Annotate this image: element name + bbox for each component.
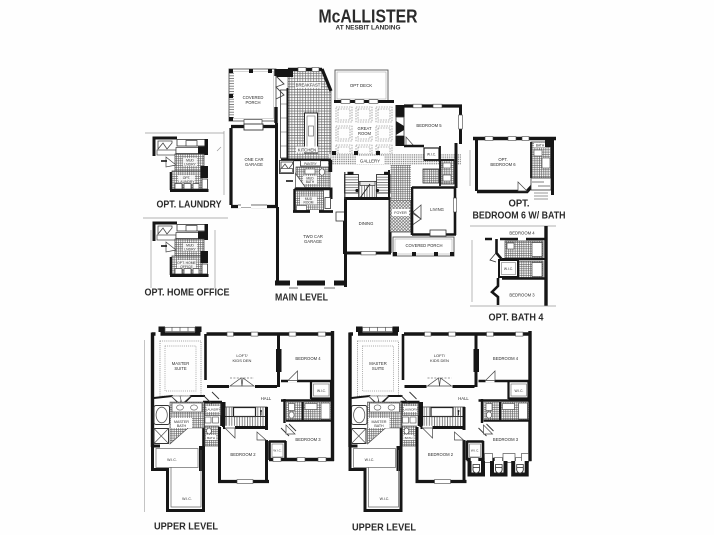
svg-text:LIVING: LIVING (430, 207, 444, 212)
svg-text:OPT. HOME OFFICE: OPT. HOME OFFICE (145, 287, 230, 299)
svg-text:BEDROOM 4: BEDROOM 4 (509, 231, 535, 236)
svg-text:BEDROOM 5: BEDROOM 5 (416, 123, 442, 128)
svg-text:AT NESBIT LANDING: AT NESBIT LANDING (336, 25, 401, 32)
svg-text:BEDROOM 6 W/ BATH: BEDROOM 6 W/ BATH (473, 210, 566, 222)
svg-text:GARAGE: GARAGE (245, 162, 263, 167)
svg-text:W.I.C.: W.I.C. (273, 449, 281, 453)
svg-text:BEDROOM 3: BEDROOM 3 (509, 293, 535, 298)
svg-text:BEDROOM 3: BEDROOM 3 (295, 437, 321, 442)
svg-text:W.I.C.: W.I.C. (182, 497, 192, 501)
svg-text:W.I.C.: W.I.C. (167, 458, 177, 462)
svg-text:LNDRY: LNDRY (184, 163, 196, 167)
svg-text:OPT.: OPT. (509, 198, 530, 210)
svg-text:PORCH: PORCH (245, 100, 260, 105)
svg-text:GARAGE: GARAGE (304, 239, 322, 244)
svg-text:BATH: BATH (306, 180, 315, 184)
svg-text:BATH: BATH (536, 144, 545, 148)
svg-text:MAIN LEVEL: MAIN LEVEL (275, 292, 328, 304)
svg-text:BEDROOM 6: BEDROOM 6 (490, 162, 516, 167)
svg-text:W.I.C.: W.I.C. (427, 153, 436, 157)
svg-text:UPPER LEVEL: UPPER LEVEL (154, 521, 219, 533)
svg-text:UPPER LEVEL: UPPER LEVEL (352, 522, 417, 534)
svg-text:McALLISTER: McALLISTER (319, 6, 418, 27)
svg-text:SUITE: SUITE (174, 366, 187, 371)
svg-text:PANTRY: PANTRY (304, 162, 318, 166)
svg-text:OPT. BATH 4: OPT. BATH 4 (489, 312, 544, 324)
svg-text:W.I.C.: W.I.C. (504, 267, 513, 271)
svg-text:COVERED PORCH: COVERED PORCH (406, 243, 443, 248)
svg-text:LNDRY: LNDRY (184, 248, 196, 252)
svg-text:OPT. LAUNDRY: OPT. LAUNDRY (157, 199, 222, 211)
svg-text:GALLERY: GALLERY (360, 159, 380, 164)
svg-text:LAUNDRY: LAUNDRY (206, 408, 220, 412)
svg-text:DINING: DINING (359, 221, 374, 226)
svg-text:KITCHEN: KITCHEN (298, 148, 316, 153)
svg-text:BEDROOM 4: BEDROOM 4 (295, 356, 321, 361)
svg-text:ROOM: ROOM (358, 131, 372, 136)
svg-text:FOYER: FOYER (394, 211, 407, 215)
svg-text:OPT DECK: OPT DECK (350, 83, 372, 88)
svg-text:W.I.C.: W.I.C. (317, 389, 326, 393)
svg-text:BREAKFAST: BREAKFAST (296, 83, 321, 88)
svg-text:HALL: HALL (261, 396, 272, 401)
svg-text:ROOM: ROOM (304, 201, 314, 205)
svg-text:BEDROOM 2: BEDROOM 2 (230, 452, 256, 457)
svg-text:BATH: BATH (207, 436, 215, 440)
svg-text:KIDS DEN: KIDS DEN (233, 358, 252, 363)
svg-text:BATH: BATH (177, 424, 187, 428)
